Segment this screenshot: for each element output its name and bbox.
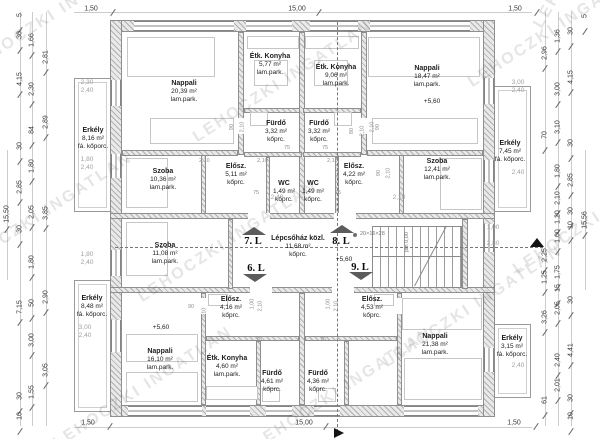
opening-spec-value: 3,00: [512, 79, 525, 87]
opening-spec-label: 2,80: [487, 240, 500, 248]
room-label-a: 11,68 m²: [271, 243, 325, 251]
dimension-label: 2,85: [17, 180, 24, 194]
room-label-a: 5,77 m²: [250, 61, 290, 69]
room-label-n: Étk. Konyha: [250, 53, 290, 61]
dimension-label: 3,26: [542, 310, 549, 324]
dimension-label: 2,89: [43, 115, 50, 129]
dim-chain-line: [74, 427, 532, 428]
room-label-n: WC: [273, 180, 295, 188]
room-label-a: 4,36 m²: [307, 378, 329, 386]
window: [206, 406, 250, 416]
opening-size-label: 75: [320, 337, 326, 343]
opening-spec-label: 2,40: [512, 169, 525, 177]
interior-wall: [299, 293, 305, 405]
room-label: Erkély7,45 m²fá. kőporc.: [495, 140, 525, 164]
dimension-label: 3,05: [43, 363, 50, 377]
dimension-label: 3,00: [555, 82, 562, 96]
opening-spec-label: 1,802,40: [81, 156, 94, 172]
opening-size-label: 75: [256, 337, 262, 343]
dimension-label: 2,81: [43, 50, 50, 64]
dimension-label: 30: [568, 139, 575, 147]
room-label-a: 4,16 m²: [220, 304, 242, 312]
room-label-fl: fá. kőporc.: [78, 143, 108, 151]
furniture: [404, 358, 482, 400]
opening-size-label: 90: [376, 170, 382, 176]
interior-wall: [305, 336, 397, 341]
room-label-n: Elősz.: [225, 163, 247, 171]
dimension-label: 4,41: [568, 343, 575, 357]
room-label-fl: lam.park.: [424, 174, 451, 182]
room-label: Erkély8,48 m²fá. kőporc.: [77, 295, 107, 319]
room-label-fl: lam.park.: [422, 349, 449, 357]
furniture: [247, 36, 299, 49]
opening-size-label: 2,10: [327, 158, 338, 164]
dim-chain-line: [545, 12, 546, 426]
interior-wall: [399, 155, 404, 217]
room-label-a: 3,32 m²: [265, 128, 287, 136]
window: [111, 250, 121, 276]
opening-size-label: 2,10: [201, 308, 207, 319]
room-label-n: Erkély: [78, 127, 108, 135]
window: [484, 160, 494, 182]
stair-note-dot: [353, 233, 357, 237]
floor-plan-drawing: Nappali20,39 m²lam.park.Étk. Konyha5,77 …: [0, 0, 600, 439]
window: [111, 80, 121, 106]
room-label-n: Szoba: [152, 242, 179, 250]
room-label-a: 12,41 m²: [424, 166, 451, 174]
opening-size-label: 2,10: [257, 301, 263, 312]
room-label-fl: kőprc.: [265, 136, 287, 144]
room-label-fl: fá. kőporc.: [495, 156, 525, 164]
dimension-label: 2,05: [555, 301, 562, 315]
room-label-fl: fá. kőporc.: [497, 351, 527, 359]
room-label-fl: kőprc.: [343, 179, 365, 187]
opening-size-label: 1,00: [325, 299, 331, 310]
room-label: Nappali20,39 m²lam.park.: [171, 80, 198, 104]
dimension-label: 10: [17, 412, 24, 420]
interior-wall: [367, 150, 483, 156]
dimension-label: 15,50: [4, 205, 11, 223]
dimension-label: 1,80: [29, 255, 36, 269]
room-label: Étk. Konyha9,06 m²lam.park.: [316, 64, 356, 88]
room-label: Elősz.4,53 m²kőprc.: [361, 296, 383, 320]
dimension-label: 4,15: [568, 70, 575, 84]
dimension-label: 7,15: [17, 300, 24, 314]
room-label-a: 3,15 m²: [497, 343, 527, 351]
interior-wall: [238, 32, 244, 155]
dimension-label: 5: [17, 13, 24, 17]
room-label: Nappali18,47 m²lam.park.: [414, 65, 441, 89]
room-label-a: 8,48 m²: [77, 303, 107, 311]
unit-arrow-down: [243, 274, 267, 282]
dimension-label: 2,10: [555, 191, 562, 205]
room-label-n: Erkély: [497, 335, 527, 343]
opening-spec-label: 1,00: [487, 224, 500, 232]
room-label-a: 9,06 m²: [316, 72, 356, 80]
dimension-label: 2,85: [568, 173, 575, 187]
room-label: Fürdő3,32 m²kőprc.: [308, 120, 330, 144]
room-label-fl: kőprc.: [261, 386, 283, 394]
opening-size-label: 2,10: [333, 301, 339, 312]
room-label-fl: kőprc.: [308, 136, 330, 144]
opening-size-label: 75: [253, 190, 259, 196]
opening-spec-value: 2,80: [487, 240, 500, 248]
room-label-n: Erkély: [77, 295, 107, 303]
room-label-a: 3,32 m²: [308, 128, 330, 136]
room-label-fl: kőprc.: [220, 312, 242, 320]
dimension-tick: [533, 423, 538, 430]
room-label-n: Nappali: [414, 65, 441, 73]
dimension-tick: [582, 28, 587, 35]
opening-size-label: 2,10: [385, 168, 391, 179]
room-label-fl: kőprc.: [361, 312, 383, 320]
staircase-mid-line: [372, 256, 462, 257]
room-label: Elősz.4,16 m²kőprc.: [220, 296, 242, 320]
dimension-label: 2,30: [29, 82, 36, 96]
opening-spec-value: 1,80: [81, 251, 94, 259]
room-label-a: 4,22 m²: [343, 171, 365, 179]
dimension-label: 2,96: [542, 46, 549, 60]
room-label-n: Étk. Konyha: [207, 355, 247, 363]
dimension-label: 15,00: [288, 6, 306, 13]
interior-wall: [462, 219, 468, 289]
opening-spec-label: 3,002,40: [79, 324, 92, 340]
dimension-label: 70: [542, 131, 549, 139]
dimension-label: 10: [568, 412, 575, 420]
room-label-fl: lam.park.: [414, 81, 441, 89]
room-label: Szoba12,41 m²lam.park.: [424, 158, 451, 182]
opening-spec-value: 2,40: [512, 362, 525, 370]
room-label: Elősz.5,11 m²kőprc.: [225, 163, 247, 187]
opening-size-label: 75: [335, 190, 341, 196]
dimension-label: 1,55: [29, 385, 36, 399]
door-opening: [332, 287, 354, 293]
level-label: +5,60: [424, 98, 440, 105]
opening-spec-value: 1,00: [487, 224, 500, 232]
dimension-tick: [17, 428, 22, 435]
opening-size-label: 2,10: [199, 158, 210, 164]
dimension-label: 1,50: [84, 6, 98, 13]
interior-wall: [303, 152, 361, 157]
room-label-fl: kőprc.: [271, 251, 325, 259]
room-label-n: Nappali: [147, 348, 174, 356]
room-label-a: 4,61 m²: [261, 378, 283, 386]
opening-spec-label: 1,802,40: [81, 251, 94, 267]
room-label: Szoba10,36 m²lam.park.: [150, 168, 177, 192]
opening-size-label: 90: [375, 124, 381, 130]
opening-spec-value: 2,40: [81, 259, 94, 267]
room-label-n: Elősz.: [343, 163, 365, 171]
room-label-a: 18,47 m²: [414, 73, 441, 81]
dimension-label: 1,50: [508, 6, 522, 13]
room-label-a: 4,60 m²: [207, 363, 247, 371]
section-line-horizontal: [115, 247, 543, 248]
room-label-a: 5,11 m²: [225, 171, 247, 179]
dimension-label: 1,20: [555, 210, 562, 224]
room-label-n: Elősz.: [361, 296, 383, 304]
room-label: Fürdő4,61 m²kőprc.: [261, 370, 283, 394]
opening-spec-label: 2,10: [393, 194, 406, 202]
opening-size-label: 75: [322, 145, 328, 151]
stair-steps-note: 20×16×28: [360, 231, 385, 237]
room-label-a: 7,45 m²: [495, 148, 525, 156]
door-opening: [250, 287, 272, 293]
opening-spec-value: 2,40: [512, 87, 525, 95]
opening-size-label: 80: [349, 128, 355, 134]
interior-wall: [122, 150, 238, 156]
dimension-label: 15: [555, 284, 562, 292]
room-label-a: 11,08 m²: [152, 250, 179, 258]
room-label: Fürdő3,32 m²kőprc.: [265, 120, 287, 144]
dimension-label: 1,50: [507, 420, 521, 427]
landing-level-note: pm 0,00: [404, 232, 410, 252]
opening-size-label: 2,10: [369, 122, 375, 133]
furniture: [127, 37, 215, 77]
unit-arrow-up: [330, 225, 354, 233]
unit-arrow-down: [349, 272, 373, 280]
room-label: Erkély3,15 m²fá. kőporc.: [497, 335, 527, 359]
dimension-label: 1,75: [555, 265, 562, 279]
interior-wall: [201, 155, 206, 217]
opening-size-label: 2,10: [359, 126, 365, 137]
opening-spec-label: 2,302,40: [81, 79, 94, 95]
room-label-fl: lam.park.: [316, 80, 356, 88]
room-label-n: Nappali: [171, 80, 198, 88]
opening-size-label: 75: [284, 145, 290, 151]
room-label-n: Szoba: [424, 158, 451, 166]
room-label-fl: lam.park.: [150, 184, 177, 192]
room-label-a: 20,39 m²: [171, 88, 198, 96]
opening-spec-value: 3,00: [79, 324, 92, 332]
window: [246, 21, 292, 31]
opening-size-label: 90: [188, 304, 194, 310]
window: [370, 21, 470, 31]
room-label-n: Fürdő: [308, 120, 330, 128]
dimension-label: 30: [17, 142, 24, 150]
opening-spec-label: 2,40: [512, 362, 525, 370]
opening-spec-value: 2,40: [79, 332, 92, 340]
dimension-label: 2,40: [555, 353, 562, 367]
room-label-a: 4,53 m²: [361, 304, 383, 312]
unit-number: 6. L: [247, 263, 265, 274]
opening-spec-value: 2,40: [81, 87, 94, 95]
dimension-label: 30: [17, 392, 24, 400]
dimension-label: 50: [29, 299, 36, 307]
unit-number: 8. L: [332, 236, 350, 247]
dimension-label: 3,10: [555, 120, 562, 134]
window: [111, 320, 121, 352]
window: [128, 406, 202, 416]
level-label: +5,60: [153, 324, 169, 331]
opening-spec-label: 3,002,40: [512, 79, 525, 95]
room-label-n: Elősz.: [220, 296, 242, 304]
opening-spec-value: 2,30: [81, 79, 94, 87]
room-label: Szoba11,08 m²lam.park.: [152, 242, 179, 266]
dimension-label: 1,80: [555, 164, 562, 178]
dimension-label: 2,01: [555, 378, 562, 392]
room-label: Étk. Konyha4,60 m²lam.park.: [207, 355, 247, 379]
window: [484, 348, 494, 372]
room-label-a: 8,16 m²: [78, 135, 108, 143]
room-label-n: Fürdő: [265, 120, 287, 128]
room-label: Elősz.4,22 m²kőprc.: [343, 163, 365, 187]
room-label-fl: kőprc.: [225, 179, 247, 187]
dimension-tick: [568, 428, 573, 435]
furniture: [206, 386, 258, 400]
dimension-label: 2,90: [43, 290, 50, 304]
room-label: Erkély8,16 m²fá. kőporc.: [78, 127, 108, 151]
room-label-n: Lépcsőház közl.: [271, 235, 325, 243]
opening-size-label: 2,10: [239, 122, 245, 133]
room-label: Lépcsőház közl.11,68 m²kőprc.: [271, 235, 325, 259]
opening-spec-value: 2,40: [512, 169, 525, 177]
opening-size-label: 1,00: [249, 299, 255, 310]
dimension-label: 30: [568, 296, 575, 304]
room-label-n: Fürdő: [261, 370, 283, 378]
room-label-fl: lam.park.: [171, 96, 198, 104]
room-label-n: Szoba: [150, 168, 177, 176]
level-label: +5,60: [336, 256, 352, 263]
room-label-n: Fürdő: [307, 370, 329, 378]
interior-wall: [110, 213, 495, 219]
dimension-label: 4,15: [17, 72, 24, 86]
room-label-a: 10,36 m²: [150, 176, 177, 184]
interior-wall: [361, 32, 367, 155]
room-label-fl: fá. kőporc.: [77, 311, 107, 319]
window: [404, 406, 478, 416]
opening-spec-value: 2,10: [393, 194, 406, 202]
furniture: [372, 118, 478, 144]
interior-wall: [303, 108, 361, 113]
room-label-fl: lam.park.: [207, 371, 247, 379]
dimension-label: 30: [568, 394, 575, 402]
interior-wall: [244, 152, 302, 157]
section-marker-right: [334, 428, 344, 438]
dimension-label: 61: [542, 396, 549, 404]
dimension-label: 1,80: [29, 159, 36, 173]
dimension-label: 3,00: [29, 333, 36, 347]
opening-spec-value: 1,80: [81, 156, 94, 164]
window: [134, 21, 234, 31]
dimension-label: 84: [29, 126, 36, 134]
opening-size-label: 2,10: [257, 158, 268, 164]
room-label-n: Erkély: [495, 140, 525, 148]
dimension-label: 30: [568, 207, 575, 215]
